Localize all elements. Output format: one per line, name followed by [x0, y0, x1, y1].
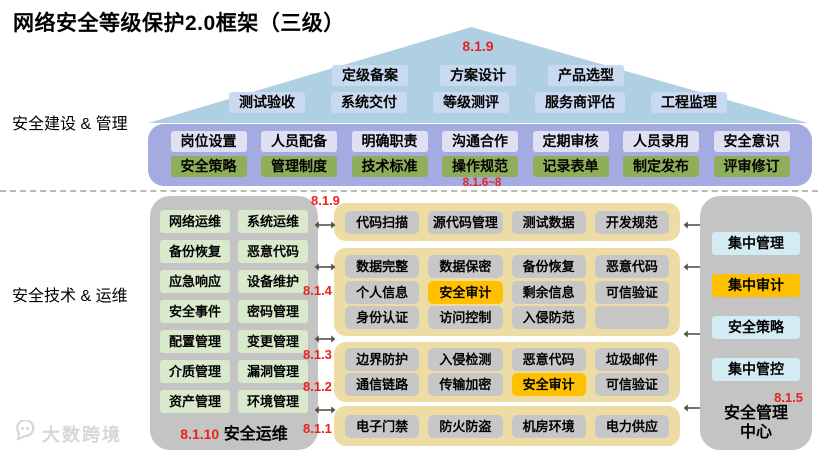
control-item: 电子门禁	[345, 415, 419, 438]
roof-item: 系统交付	[331, 92, 407, 113]
control-item: 通信链路	[345, 373, 419, 396]
management-item: 人员配备	[261, 131, 337, 152]
watermark-logo-icon	[14, 420, 36, 447]
section-label-build: 安全建设 & 管理	[12, 110, 128, 134]
link-arrow-icon	[314, 259, 336, 269]
operations-item: 配置管理	[160, 330, 230, 353]
management-item: 安全策略	[171, 156, 247, 177]
management-row-2: 安全策略管理制度技术标准操作规范记录表单制定发布评审修订	[156, 156, 804, 177]
control-item: 安全审计	[512, 373, 586, 396]
management-item: 安全意识	[714, 131, 790, 152]
management-item: 制定发布	[623, 156, 699, 177]
center-item: 集中管理	[712, 232, 800, 255]
management-item: 记录表单	[533, 156, 609, 177]
control-item: 入侵检测	[428, 348, 502, 371]
management-item: 操作规范	[442, 156, 518, 177]
control-item: 电力供应	[595, 415, 669, 438]
block-development: 代码扫描源代码管理测试数据开发规范	[334, 203, 680, 241]
clause-tag-8-1-5: 8.1.5	[774, 390, 803, 405]
clause-tag-roof-text: 8.1.9	[462, 38, 493, 54]
operations-item: 资产管理	[160, 390, 230, 413]
center-item: 安全策略	[712, 316, 800, 339]
management-item: 岗位设置	[171, 131, 247, 152]
clause-tag-8-1-1: 8.1.1	[303, 421, 337, 436]
management-center-items: 集中管理集中审计安全策略集中管控	[700, 232, 812, 381]
block-network-security: 边界防护入侵检测恶意代码垃圾邮件通信链路传输加密安全审计可信验证	[334, 342, 680, 402]
center-item: 集中审计	[712, 274, 800, 297]
control-item: 恶意代码	[512, 348, 586, 371]
roof-item: 产品选型	[548, 65, 624, 86]
center-item: 集中管控	[712, 358, 800, 381]
control-item: 源代码管理	[428, 211, 502, 234]
management-item: 沟通合作	[442, 131, 518, 152]
roof-item: 定级备案	[332, 65, 408, 86]
management-item: 定期审核	[533, 131, 609, 152]
management-center-footer: 安全管理中心	[700, 404, 812, 442]
roof-row-1: 定级备案方案设计产品选型	[148, 65, 808, 86]
watermark-text: 大数跨境	[42, 421, 122, 447]
clause-tag-8-1-2: 8.1.2	[303, 379, 337, 394]
control-item: 备份恢复	[512, 255, 586, 278]
operations-item: 介质管理	[160, 360, 230, 383]
control-item: 传输加密	[428, 373, 502, 396]
control-row: 边界防护入侵检测恶意代码垃圾邮件	[345, 348, 669, 371]
management-item: 评审修订	[714, 156, 790, 177]
control-item: 个人信息	[345, 281, 419, 304]
roof-item: 等级测评	[433, 92, 509, 113]
control-item: 可信验证	[595, 373, 669, 396]
control-row: 电子门禁防火防盗机房环境电力供应	[345, 415, 669, 438]
operations-footer: 8.1.10 安全运维	[150, 420, 318, 444]
control-item: 数据完整	[345, 255, 419, 278]
control-item: 身份认证	[345, 306, 419, 329]
operations-item: 密码管理	[238, 300, 308, 323]
control-row: 身份认证访问控制入侵防范	[345, 306, 669, 329]
operations-item: 应急响应	[160, 270, 230, 293]
control-row: 数据完整数据保密备份恢复恶意代码	[345, 255, 669, 278]
control-item	[595, 306, 669, 329]
clause-tag-roof: 8.1.9	[148, 38, 808, 56]
operations-item: 环境管理	[238, 390, 308, 413]
clause-tag-operations: 8.1.10	[180, 426, 219, 442]
control-item: 访问控制	[428, 306, 502, 329]
operations-item: 漏洞管理	[238, 360, 308, 383]
section-label-tech: 安全技术 & 运维	[12, 282, 128, 306]
roof-row-2: 测试验收系统交付等级测评服务商评估工程监理	[148, 92, 808, 113]
operations-item: 设备维护	[238, 270, 308, 293]
management-center-box: 集中管理集中审计安全策略集中管控 8.1.5 安全管理中心	[700, 196, 812, 450]
roof-item: 服务商评估	[535, 92, 625, 113]
control-row: 个人信息安全审计剩余信息可信验证	[345, 281, 669, 304]
control-item: 恶意代码	[595, 255, 669, 278]
clause-tag-8-1-3: 8.1.3	[303, 347, 337, 362]
operations-item: 恶意代码	[238, 240, 308, 263]
control-item: 边界防护	[345, 348, 419, 371]
control-item: 可信验证	[595, 281, 669, 304]
section-divider	[0, 190, 818, 192]
security-framework-diagram: { "title": "网络安全等级保护2.0框架（三级）", "section…	[0, 0, 818, 458]
operations-item: 变更管理	[238, 330, 308, 353]
operations-item: 安全事件	[160, 300, 230, 323]
watermark: 大数跨境	[14, 420, 122, 447]
roof-item: 测试验收	[229, 92, 305, 113]
management-item: 人员录用	[623, 131, 699, 152]
clause-tag-8-1-4: 8.1.4	[303, 283, 337, 298]
control-item: 数据保密	[428, 255, 502, 278]
operations-item: 系统运维	[238, 210, 308, 233]
control-item: 安全审计	[428, 281, 502, 304]
link-arrow-icon	[314, 402, 336, 412]
control-item: 机房环境	[512, 415, 586, 438]
operations-box: 网络运维系统运维备份恢复恶意代码应急响应设备维护安全事件密码管理配置管理变更管理…	[150, 196, 318, 450]
operations-item: 备份恢复	[160, 240, 230, 263]
block-compute-security: 数据完整数据保密备份恢复恶意代码个人信息安全审计剩余信息可信验证身份认证访问控制…	[334, 248, 680, 336]
control-item: 入侵防范	[512, 306, 586, 329]
roof-item: 工程监理	[651, 92, 727, 113]
control-item: 开发规范	[595, 211, 669, 234]
clause-tag-management: 8.1.6~8	[152, 177, 812, 189]
control-item: 垃圾邮件	[595, 348, 669, 371]
control-item: 防火防盗	[428, 415, 502, 438]
block-physical-security: 电子门禁防火防盗机房环境电力供应	[334, 406, 680, 446]
management-band: 岗位设置人员配备明确职责沟通合作定期审核人员录用安全意识 安全策略管理制度技术标…	[148, 124, 812, 186]
management-item: 管理制度	[261, 156, 337, 177]
operations-footer-label: 安全运维	[224, 426, 288, 443]
operations-item: 网络运维	[160, 210, 230, 233]
management-center-label: 安全管理中心	[720, 404, 792, 442]
control-row: 代码扫描源代码管理测试数据开发规范	[345, 211, 669, 234]
control-item: 测试数据	[512, 211, 586, 234]
control-row: 通信链路传输加密安全审计可信验证	[345, 373, 669, 396]
clause-tag-8-1-9: 8.1.9	[311, 193, 345, 208]
roof-content: 8.1.9 定级备案方案设计产品选型 测试验收系统交付等级测评服务商评估工程监理	[148, 27, 808, 123]
operations-grid: 网络运维系统运维备份恢复恶意代码应急响应设备维护安全事件密码管理配置管理变更管理…	[160, 210, 308, 413]
link-arrow-icon	[314, 331, 336, 341]
roof-item: 方案设计	[440, 65, 516, 86]
management-item: 明确职责	[352, 131, 428, 152]
control-item: 剩余信息	[512, 281, 586, 304]
management-row-1: 岗位设置人员配备明确职责沟通合作定期审核人员录用安全意识	[156, 131, 804, 152]
management-item: 技术标准	[352, 156, 428, 177]
control-item: 代码扫描	[345, 211, 419, 234]
link-arrow-icon	[314, 217, 336, 227]
